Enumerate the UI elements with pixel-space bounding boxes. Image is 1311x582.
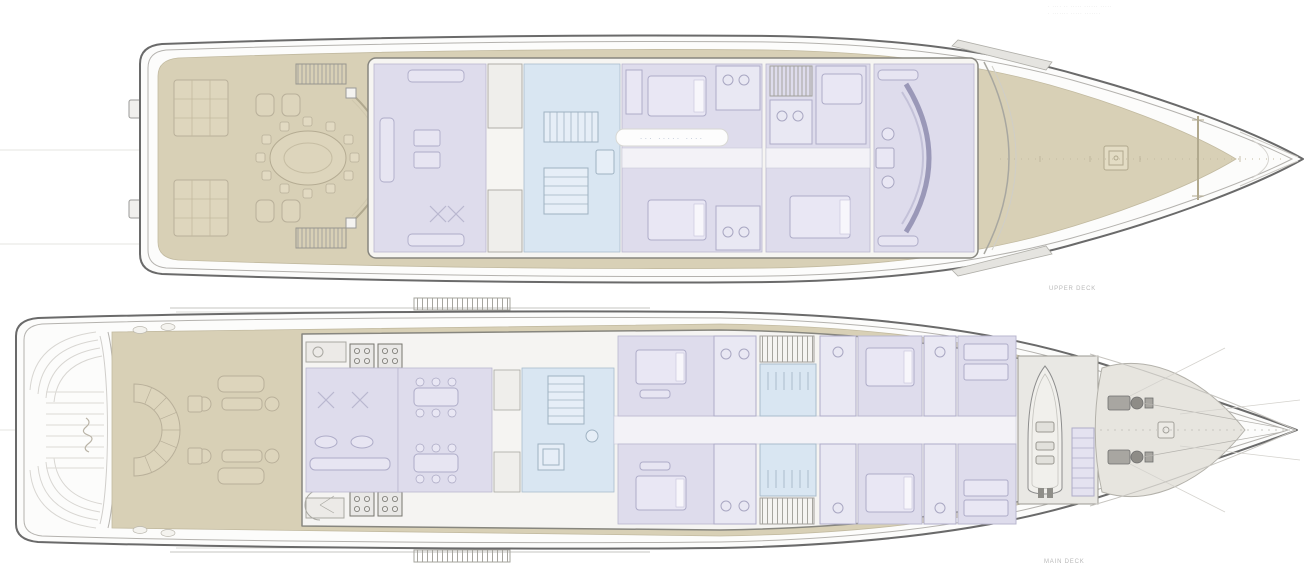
- main-deck-label: MAIN DECK: [1044, 559, 1085, 565]
- tender-garage: [1018, 356, 1098, 504]
- corner-notes: · ···· ·· ····· ······ ····· · ······· ·…: [1048, 3, 1168, 17]
- cabin-block-a: [622, 64, 762, 252]
- main-foyer: [522, 368, 614, 492]
- sky-lounge: [374, 64, 486, 252]
- guest-cabins-bottom: [618, 444, 956, 524]
- main-salon: [306, 368, 398, 492]
- yacht-deck-plans-canvas: ··· ····· ····: [0, 0, 1311, 582]
- deck-hatch: [1104, 146, 1128, 170]
- stair-foyer: [524, 64, 620, 252]
- guide-lines: [0, 150, 140, 244]
- watermark-text: ··· ····· ····: [640, 134, 704, 143]
- dining-room: [398, 368, 492, 492]
- corridor: [614, 416, 1016, 444]
- corner-note-line: · ······· ····· ·······: [1048, 10, 1168, 17]
- wheelhouse: [874, 64, 974, 252]
- focsle-deck: [1095, 348, 1300, 512]
- main-deck-plan: [0, 292, 1311, 582]
- watermark: ··· ····· ····: [616, 129, 728, 146]
- cabin-block-b: [766, 64, 870, 252]
- dining-table: [270, 131, 346, 185]
- upper-deck-plan: ··· ····· ····: [0, 0, 1311, 292]
- guest-cabins-top: [618, 336, 956, 416]
- corner-note-line: · ···· ·· ····· ······ ·····: [1048, 3, 1168, 10]
- upper-deck-label: UPPER DECK: [1049, 286, 1096, 292]
- elevator: [538, 444, 564, 470]
